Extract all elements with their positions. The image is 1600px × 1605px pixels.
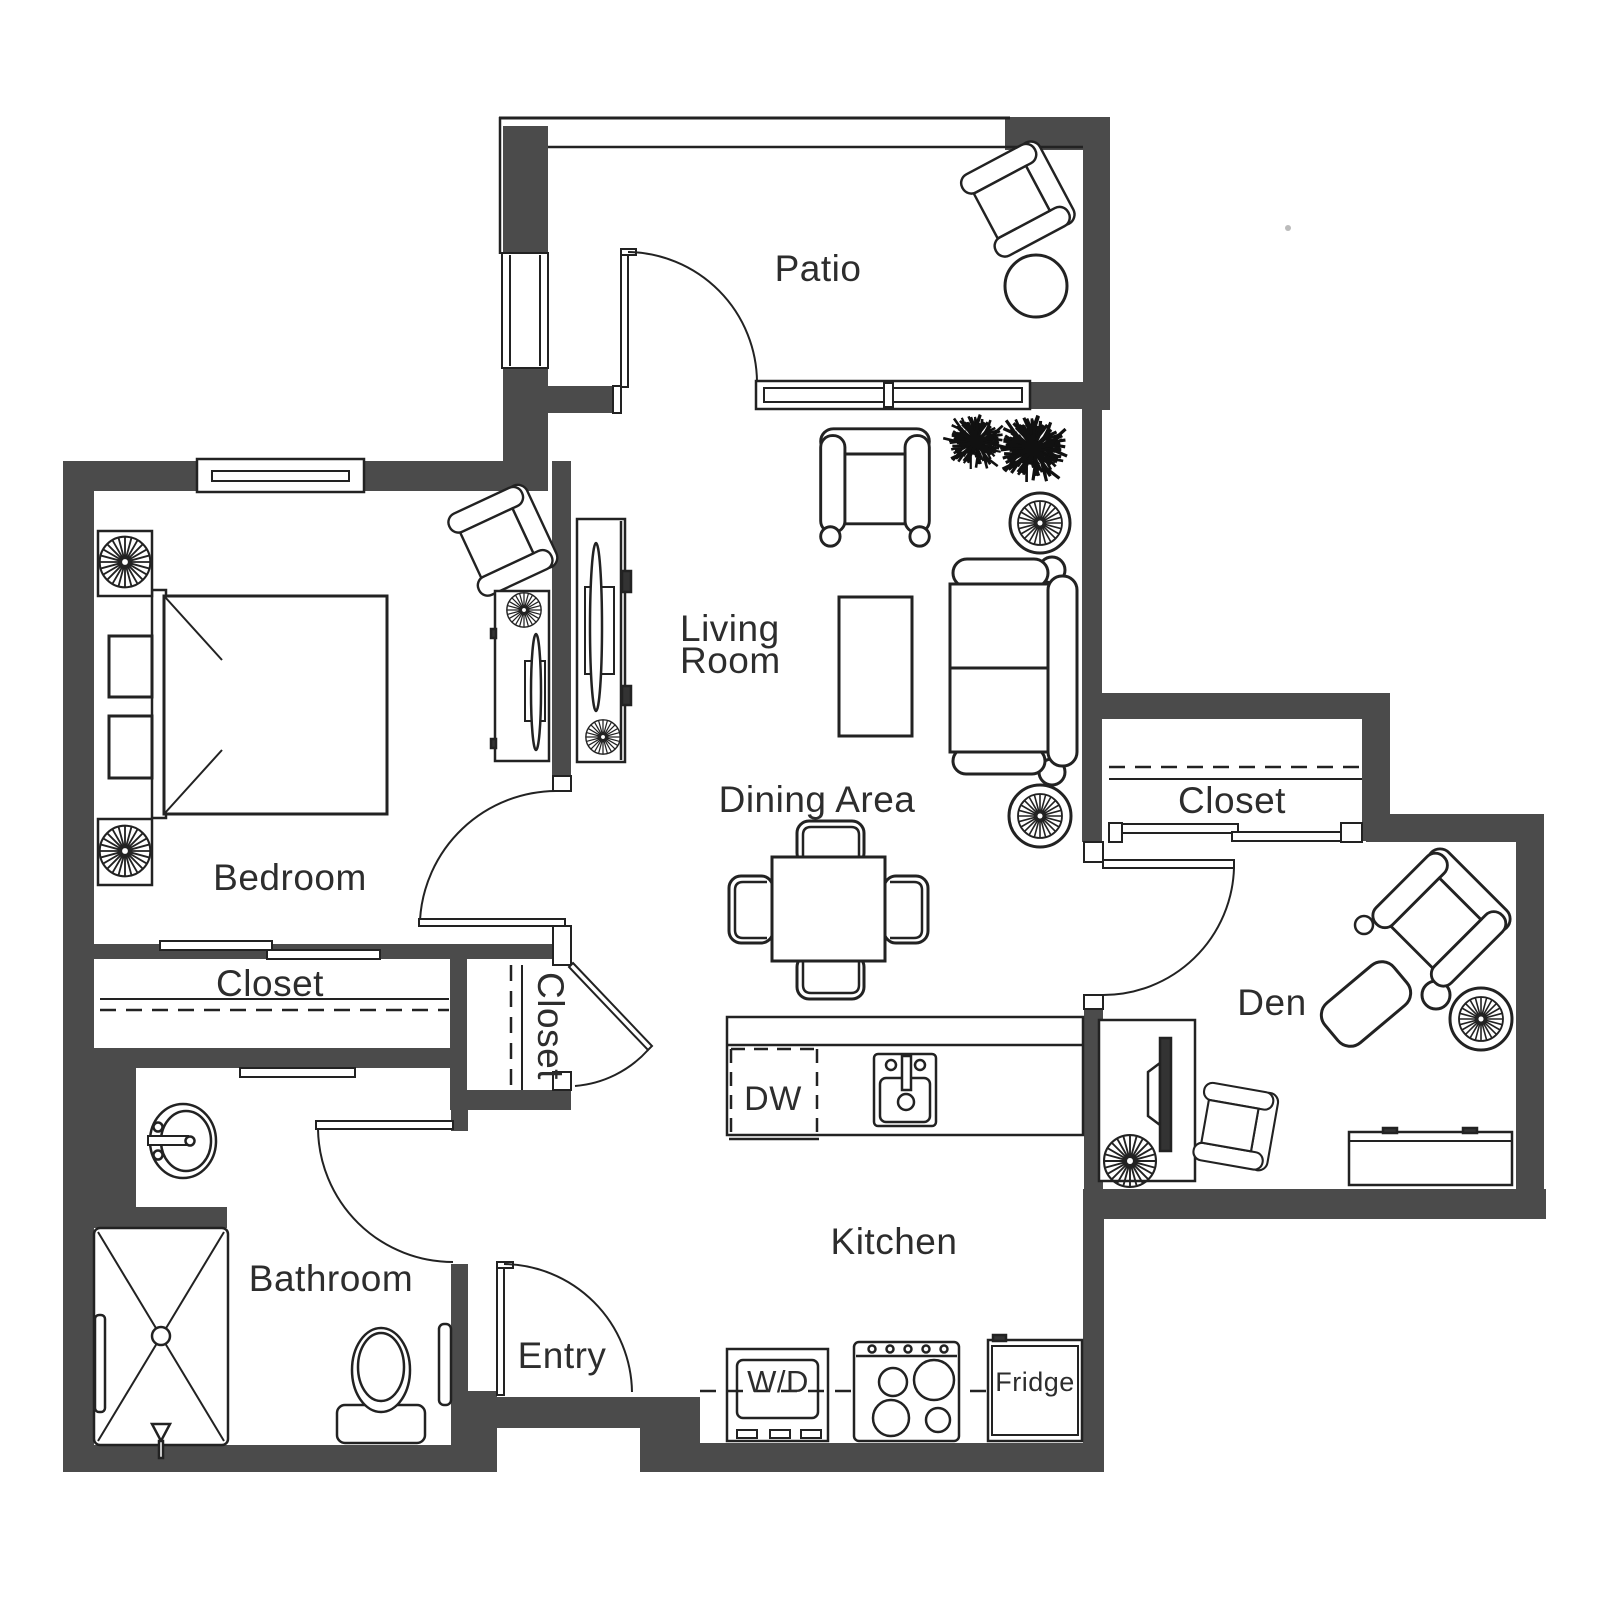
svg-text:W/D: W/D <box>747 1364 809 1399</box>
svg-text:Kitchen: Kitchen <box>831 1221 958 1262</box>
svg-text:Patio: Patio <box>775 248 862 289</box>
svg-text:Room: Room <box>680 640 781 681</box>
svg-text:Closet: Closet <box>1178 780 1286 821</box>
svg-text:Closet: Closet <box>216 963 324 1004</box>
svg-text:Bathroom: Bathroom <box>249 1258 413 1299</box>
svg-text:Closet: Closet <box>530 972 571 1080</box>
svg-text:Fridge: Fridge <box>995 1367 1075 1397</box>
svg-text:Bedroom: Bedroom <box>213 857 367 898</box>
svg-text:DW: DW <box>744 1080 802 1118</box>
svg-text:Dining Area: Dining Area <box>719 779 916 820</box>
svg-text:Den: Den <box>1237 982 1306 1023</box>
svg-text:Entry: Entry <box>518 1335 607 1376</box>
